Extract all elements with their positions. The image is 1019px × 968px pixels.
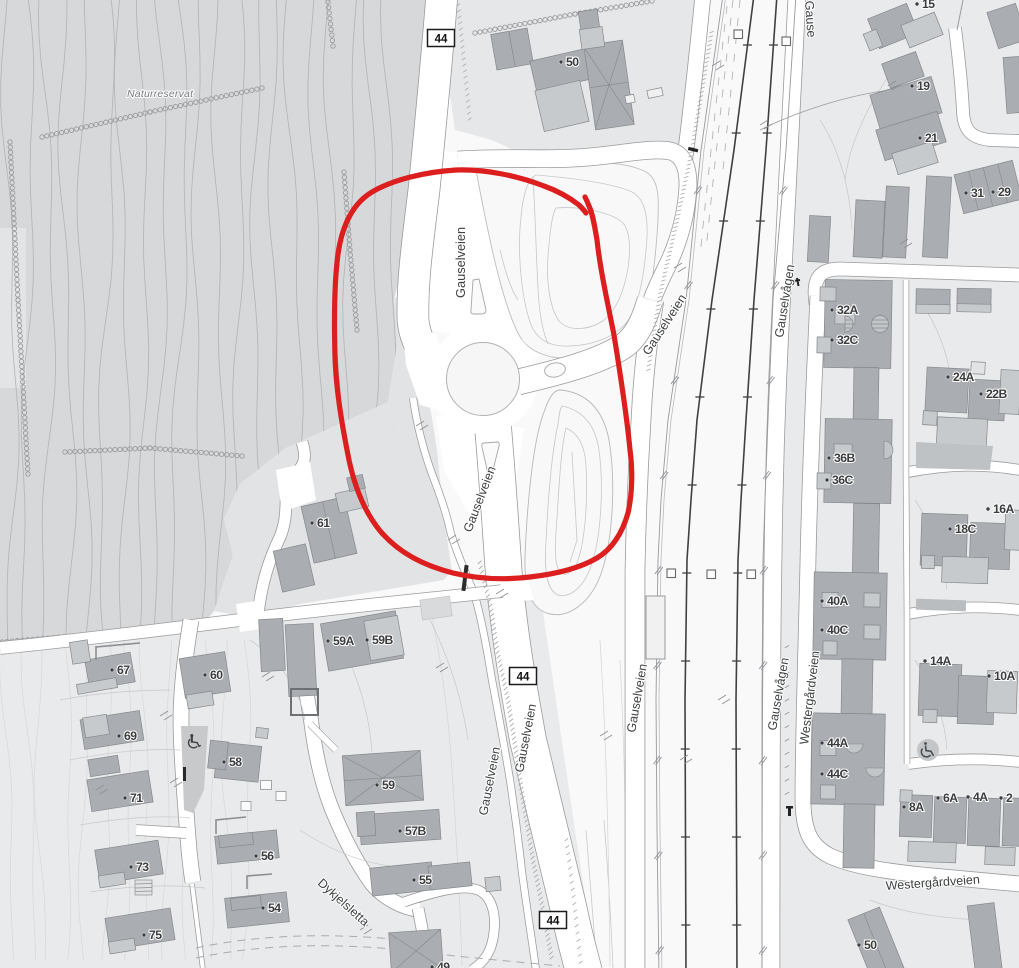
- svg-text:2: 2: [1006, 791, 1013, 805]
- svg-text:22B: 22B: [986, 387, 1008, 401]
- svg-text:49: 49: [437, 960, 450, 968]
- svg-text:56: 56: [261, 849, 274, 863]
- svg-text:24A: 24A: [953, 370, 975, 384]
- svg-text:40C: 40C: [827, 623, 849, 637]
- svg-text:44A: 44A: [827, 736, 849, 750]
- svg-text:59B: 59B: [372, 633, 394, 647]
- svg-text:Gauselveien: Gauselveien: [453, 227, 468, 298]
- svg-text:57B: 57B: [405, 824, 427, 838]
- svg-text:14A: 14A: [930, 654, 952, 668]
- svg-text:32C: 32C: [837, 333, 859, 347]
- svg-text:31: 31: [971, 186, 984, 200]
- svg-text:67: 67: [117, 663, 130, 677]
- svg-text:59: 59: [382, 778, 395, 792]
- svg-text:10A: 10A: [994, 669, 1016, 683]
- svg-text:58: 58: [229, 755, 242, 769]
- svg-text:19: 19: [917, 79, 930, 93]
- svg-text:8A: 8A: [909, 800, 924, 814]
- svg-text:44: 44: [547, 916, 560, 928]
- svg-text:73: 73: [136, 860, 149, 874]
- svg-text:18C: 18C: [955, 522, 977, 536]
- svg-text:6A: 6A: [943, 791, 958, 805]
- svg-text:59A: 59A: [333, 634, 355, 648]
- svg-text:4A: 4A: [973, 790, 988, 804]
- svg-text:16A: 16A: [993, 502, 1015, 516]
- svg-text:69: 69: [124, 729, 137, 743]
- svg-text:44C: 44C: [827, 767, 849, 781]
- svg-text:44: 44: [435, 34, 448, 46]
- svg-text:21: 21: [925, 131, 938, 145]
- svg-text:55: 55: [419, 873, 432, 887]
- svg-text:15: 15: [922, 0, 935, 11]
- svg-text:29: 29: [998, 185, 1011, 199]
- svg-text:Gause: Gause: [802, 0, 819, 38]
- svg-text:36B: 36B: [834, 451, 856, 465]
- svg-text:54: 54: [268, 901, 281, 915]
- svg-text:50: 50: [864, 938, 877, 952]
- svg-text:71: 71: [130, 791, 143, 805]
- svg-text:75: 75: [149, 928, 162, 942]
- svg-text:44: 44: [517, 672, 530, 684]
- svg-text:60: 60: [210, 668, 223, 682]
- svg-text:50: 50: [566, 55, 579, 69]
- svg-text:61: 61: [317, 516, 330, 530]
- svg-text:Naturreservat: Naturreservat: [127, 88, 194, 100]
- svg-text:40A: 40A: [827, 594, 849, 608]
- svg-text:36C: 36C: [832, 473, 854, 487]
- svg-text:32A: 32A: [837, 303, 859, 317]
